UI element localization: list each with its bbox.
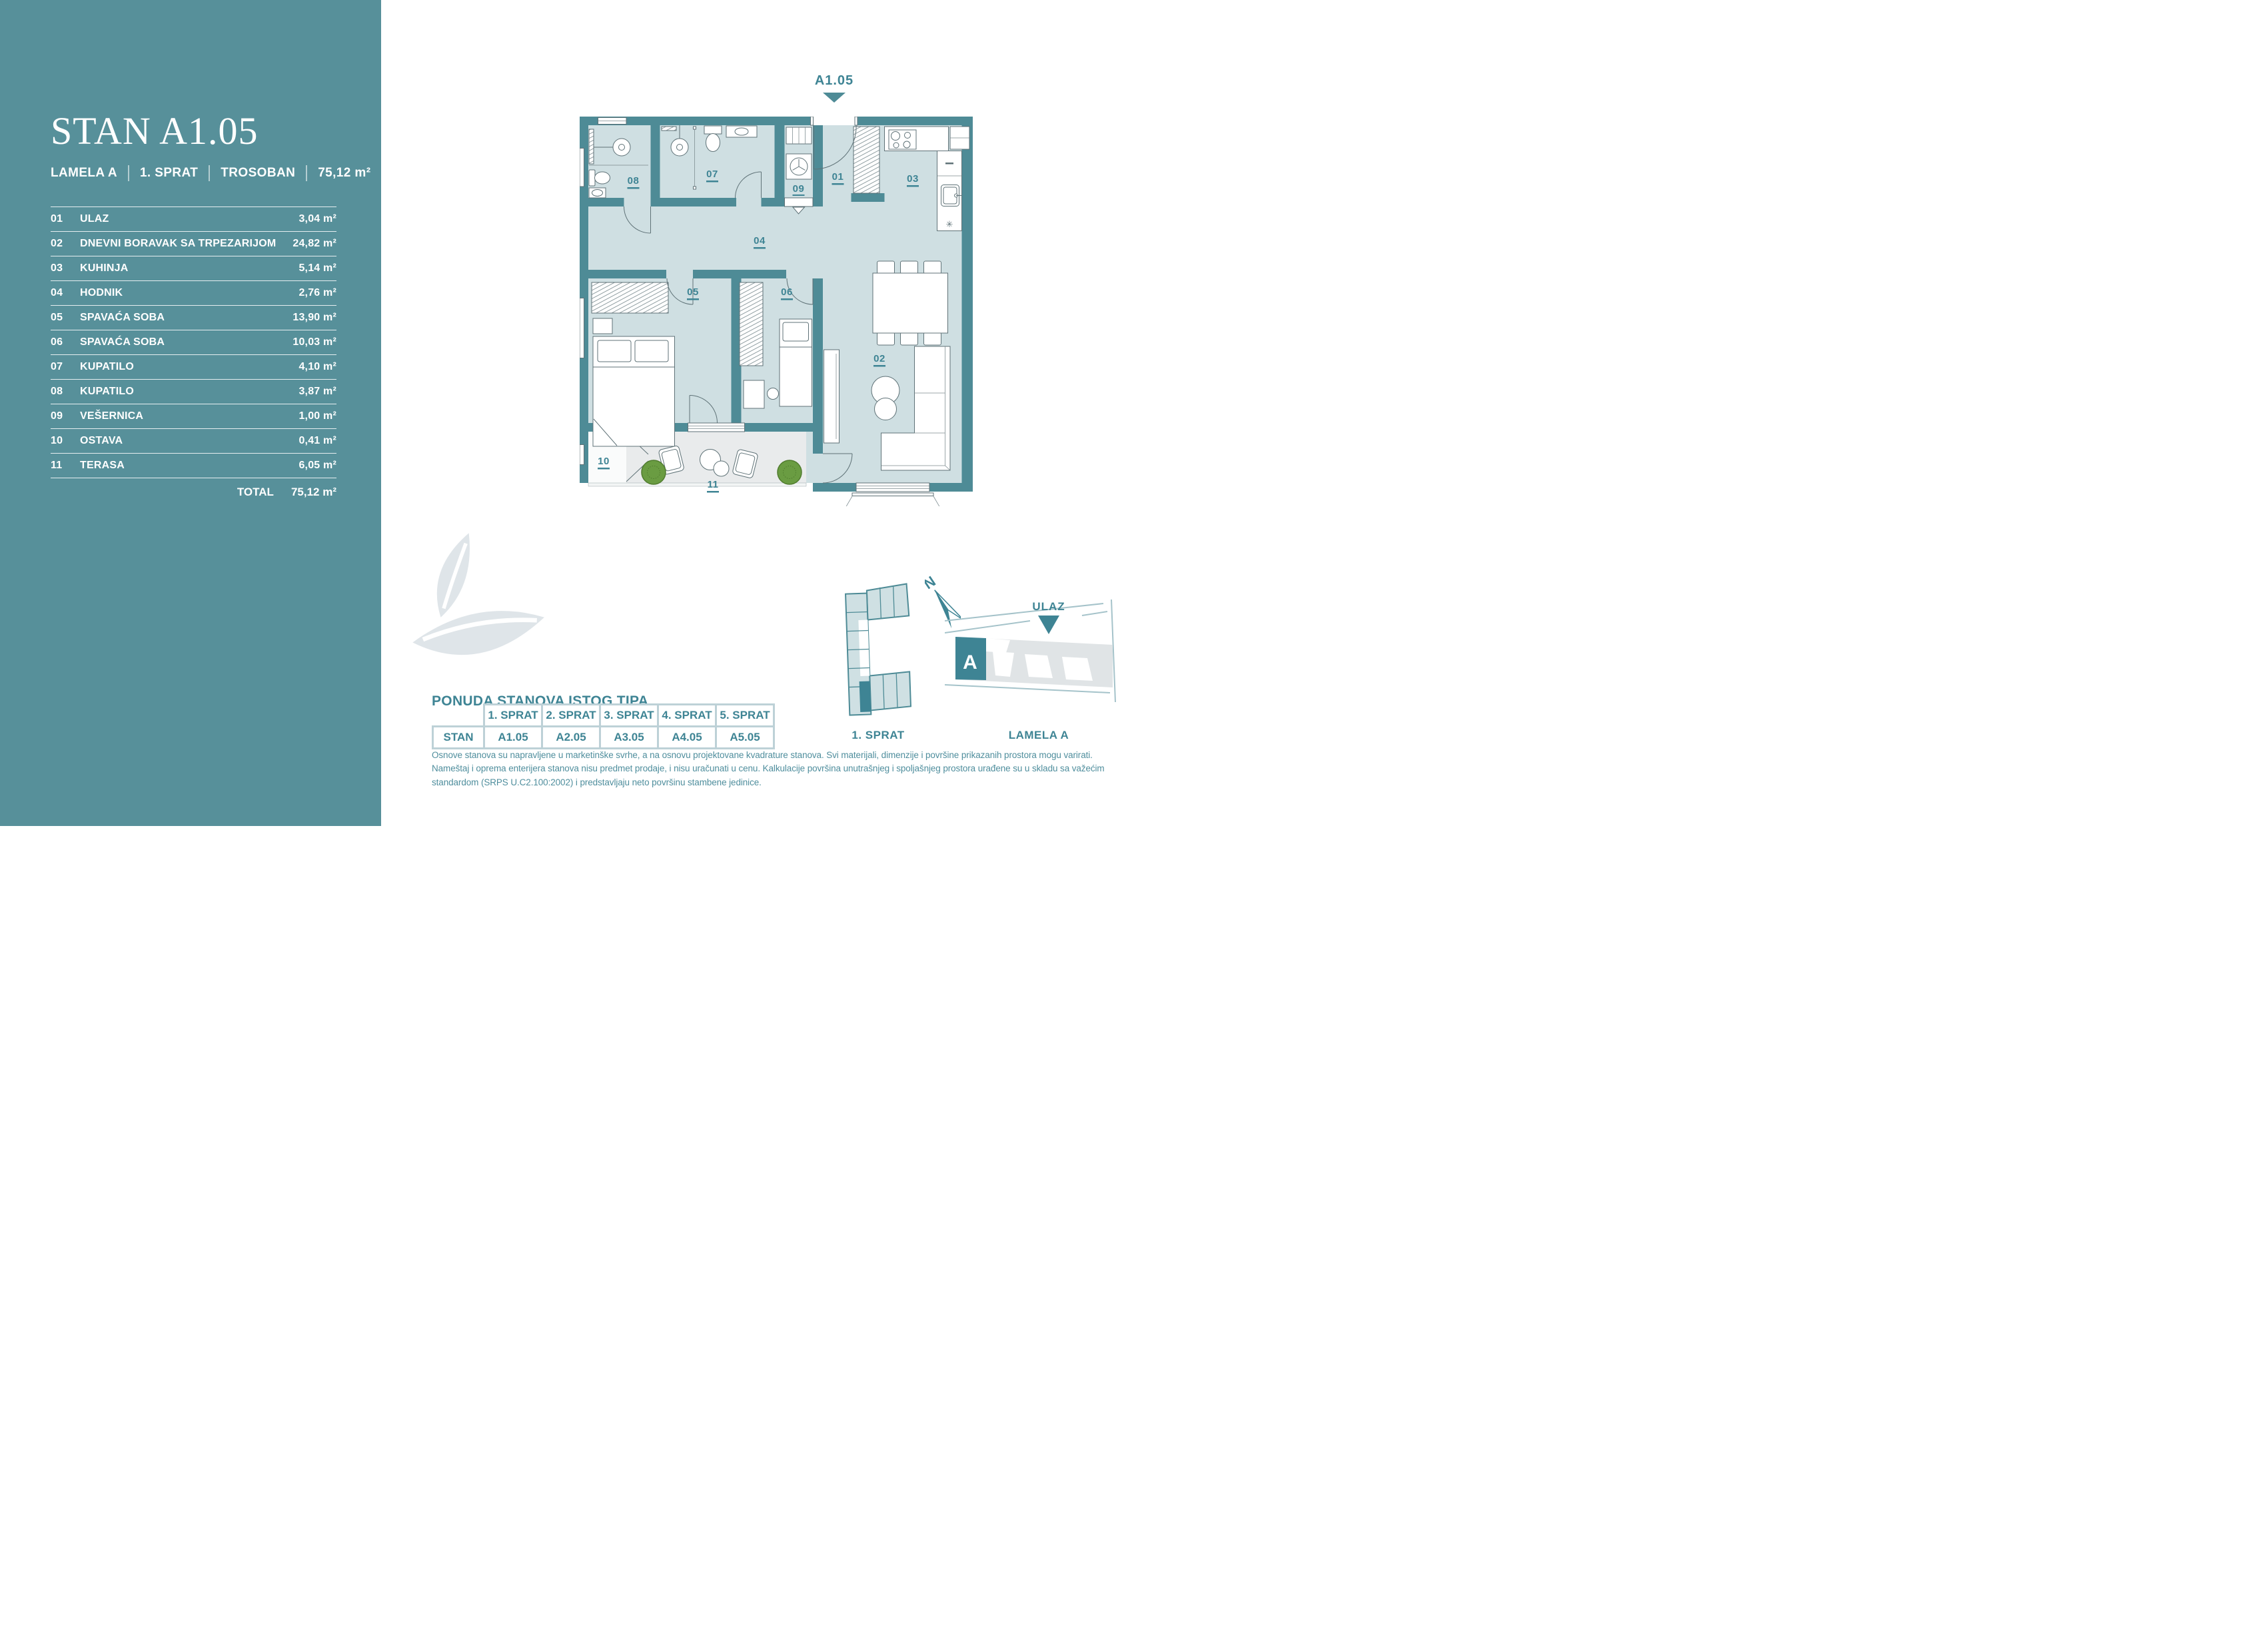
floor-header: 5. SPRAT xyxy=(716,705,774,727)
leaf-icon xyxy=(412,611,544,655)
sidebar: STAN A1.05 LAMELA A 1. SPRAT TROSOBAN 75… xyxy=(0,0,381,826)
room-name: DNEVNI BORAVAK SA TRPEZARIJOM xyxy=(80,238,292,250)
blank-cell xyxy=(433,705,484,727)
bedroom5-wardrobe xyxy=(592,282,668,313)
room-label: 11 xyxy=(708,479,719,490)
room-num: 05 xyxy=(51,312,80,324)
plant xyxy=(642,460,666,484)
room-area: 1,00 m² xyxy=(298,410,336,422)
table-row: 07KUPATILO4,10 m² xyxy=(51,354,336,379)
floor-header: 1. SPRAT xyxy=(484,705,542,727)
room-num: 07 xyxy=(51,361,80,373)
total-row: TOTAL75,12 m² xyxy=(51,478,336,506)
room-num: 10 xyxy=(51,435,80,447)
room-num: 09 xyxy=(51,410,80,422)
room-num: 02 xyxy=(51,238,80,250)
room-area: 3,87 m² xyxy=(298,386,336,398)
room-name: OSTAVA xyxy=(80,435,298,447)
block-label: A xyxy=(963,651,977,673)
room-area: 10,03 m² xyxy=(292,336,336,348)
room-label: 05 xyxy=(687,286,699,298)
offer-table: 1. SPRAT 2. SPRAT 3. SPRAT 4. SPRAT 5. S… xyxy=(432,703,775,749)
unit-marker-label: A1.05 xyxy=(808,73,861,89)
unit-meta: LAMELA A 1. SPRAT TROSOBAN 75,12 m² xyxy=(51,165,370,181)
room-num: 04 xyxy=(51,287,80,299)
page-title: STAN A1.05 xyxy=(51,112,259,151)
down-arrow-icon xyxy=(1038,616,1059,634)
floor-plan: ✳ xyxy=(580,117,973,506)
divider xyxy=(306,165,307,181)
table-row: 01ULAZ3,04 m² xyxy=(51,206,336,231)
room-area: 0,41 m² xyxy=(298,435,336,447)
unit-cell: A3.05 xyxy=(600,727,658,749)
room-name: KUPATILO xyxy=(80,361,298,373)
room-area: 3,04 m² xyxy=(298,213,336,225)
floor-header: 3. SPRAT xyxy=(600,705,658,727)
offer-header-row: 1. SPRAT 2. SPRAT 3. SPRAT 4. SPRAT 5. S… xyxy=(433,705,774,727)
room-label: 01 xyxy=(832,171,844,183)
north-label: N xyxy=(925,573,939,593)
room-name: KUPATILO xyxy=(80,386,298,398)
disclaimer-text: Osnove stanova su napravljene u marketin… xyxy=(432,749,1127,789)
bedroom6-wardrobe xyxy=(740,282,763,366)
site-map: A ULAZ xyxy=(945,598,1132,706)
room-name: SPAVAĆA SOBA xyxy=(80,336,292,348)
offer-data-row: STAN A1.05 A2.05 A3.05 A4.05 A5.05 xyxy=(433,727,774,749)
entry-wardrobe xyxy=(853,127,879,193)
total-label: TOTAL xyxy=(237,486,274,499)
table-row: 04HODNIK2,76 m² xyxy=(51,280,336,305)
row-label: STAN xyxy=(433,727,484,749)
room-name: KUHINJA xyxy=(80,262,298,274)
room-area: 6,05 m² xyxy=(298,460,336,472)
bedroom5-furniture xyxy=(593,318,675,446)
site-map-caption: LAMELA A xyxy=(958,729,1119,742)
radiator xyxy=(662,127,676,131)
floor-header: 4. SPRAT xyxy=(658,705,716,727)
room-name: TERASA xyxy=(80,460,298,472)
room-label: 10 xyxy=(598,456,610,467)
meta-floor: 1. SPRAT xyxy=(140,166,198,181)
unit-cell: A5.05 xyxy=(716,727,774,749)
entrance-label: ULAZ xyxy=(1032,600,1065,613)
room-name: ULAZ xyxy=(80,213,298,225)
room-label: 03 xyxy=(907,173,919,185)
down-arrow-icon xyxy=(823,93,846,103)
room-area: 24,82 m² xyxy=(292,238,336,250)
room-num: 01 xyxy=(51,213,80,225)
unit-cell: A2.05 xyxy=(542,727,600,749)
sink-symbol: ✳ xyxy=(946,219,953,229)
dining-table xyxy=(873,273,948,333)
room-num: 08 xyxy=(51,386,80,398)
unit-cell: A4.05 xyxy=(658,727,716,749)
room-label: 07 xyxy=(706,169,718,180)
room-area: 2,76 m² xyxy=(298,287,336,299)
coffee-table xyxy=(875,398,897,420)
radiator xyxy=(589,129,594,164)
divider xyxy=(209,165,210,181)
table-row: 09VEŠERNICA1,00 m² xyxy=(51,404,336,428)
room-name: VEŠERNICA xyxy=(80,410,298,422)
meta-area: 75,12 m² xyxy=(318,166,370,181)
floor-header: 2. SPRAT xyxy=(542,705,600,727)
total-area: 75,12 m² xyxy=(291,486,336,499)
meta-lamela: LAMELA A xyxy=(51,166,117,181)
table-row: 05SPAVAĆA SOBA13,90 m² xyxy=(51,305,336,330)
unit-cell: A1.05 xyxy=(484,727,542,749)
highlighted-unit xyxy=(859,681,871,712)
room-area: 4,10 m² xyxy=(298,361,336,373)
table-row: 11TERASA6,05 m² xyxy=(51,453,336,478)
room-label: 09 xyxy=(793,183,805,195)
room-label: 02 xyxy=(873,353,885,364)
room-label: 04 xyxy=(754,235,766,246)
table-row: 10OSTAVA0,41 m² xyxy=(51,428,336,453)
brochure-page: STAN A1.05 LAMELA A 1. SPRAT TROSOBAN 75… xyxy=(0,0,1132,826)
unit-marker: A1.05 xyxy=(808,73,861,103)
plant xyxy=(778,460,802,484)
floor-key-caption: 1. SPRAT xyxy=(836,729,921,742)
meta-type: TROSOBAN xyxy=(221,166,295,181)
table-row: 08KUPATILO3,87 m² xyxy=(51,379,336,404)
room-area: 5,14 m² xyxy=(298,262,336,274)
room-num: 06 xyxy=(51,336,80,348)
tv-unit xyxy=(824,350,840,443)
floor-key-map xyxy=(844,582,913,718)
leaf-logo xyxy=(404,532,552,679)
table-row: 06SPAVAĆA SOBA10,03 m² xyxy=(51,330,336,354)
divider xyxy=(128,165,129,181)
table-row: 02DNEVNI BORAVAK SA TRPEZARIJOM24,82 m² xyxy=(51,231,336,256)
room-name: SPAVAĆA SOBA xyxy=(80,312,292,324)
room-name: HODNIK xyxy=(80,287,298,299)
room-table: 01ULAZ3,04 m² 02DNEVNI BORAVAK SA TRPEZA… xyxy=(51,206,336,506)
room-num: 03 xyxy=(51,262,80,274)
table-row: 03KUHINJA5,14 m² xyxy=(51,256,336,280)
room-label: 08 xyxy=(628,175,640,187)
room-label: 06 xyxy=(781,286,793,298)
room-area: 13,90 m² xyxy=(292,312,336,324)
room-num: 11 xyxy=(51,460,80,472)
